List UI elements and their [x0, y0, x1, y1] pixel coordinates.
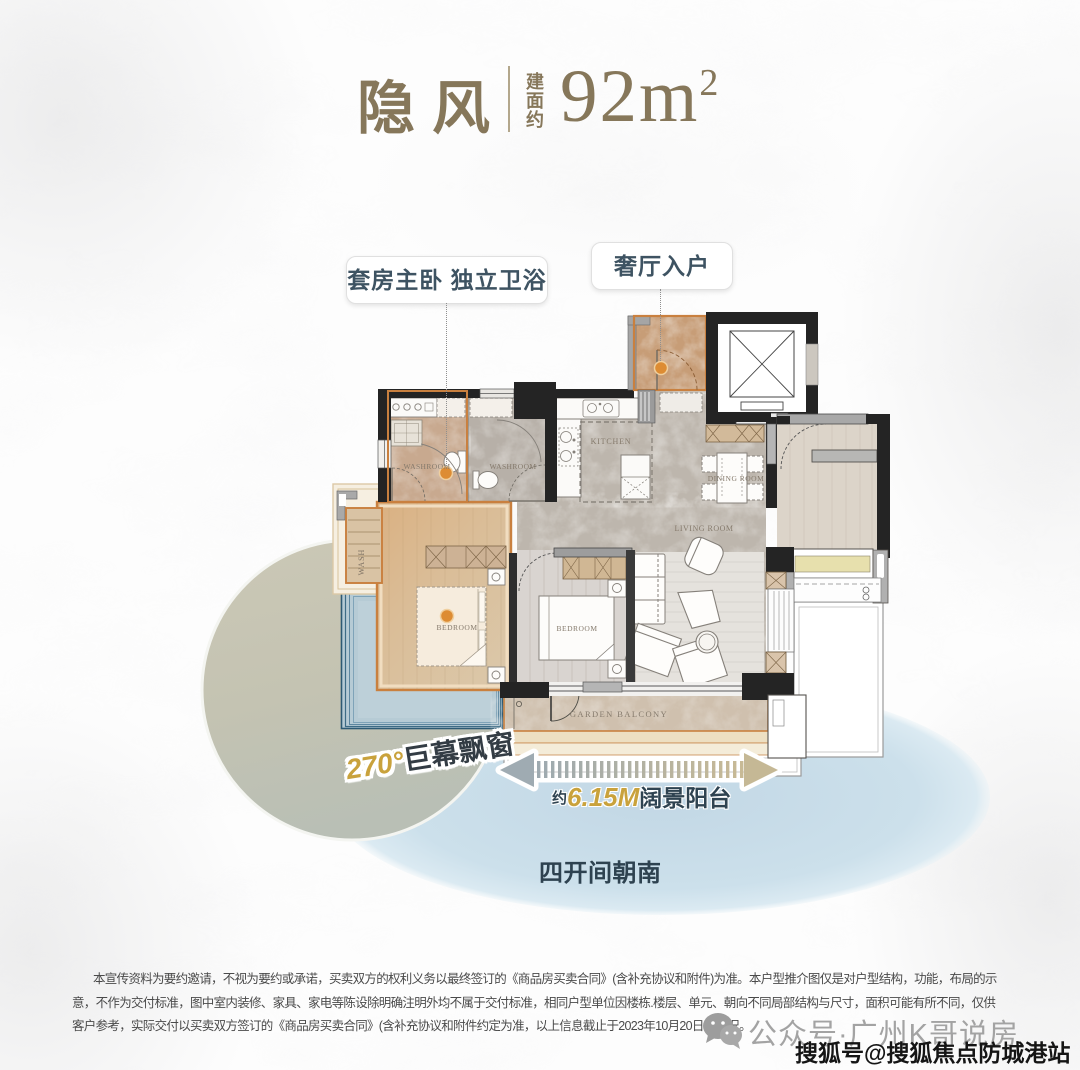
svg-text:WASHROOM: WASHROOM [404, 462, 451, 471]
svg-text:GARDEN BALCONY: GARDEN BALCONY [570, 709, 668, 719]
svg-text:BEDROOM: BEDROOM [556, 624, 597, 633]
svg-text:BEDROOM: BEDROOM [436, 623, 477, 632]
svg-text:LIVING ROOM: LIVING ROOM [674, 524, 733, 533]
svg-text:KITCHEN: KITCHEN [591, 437, 632, 446]
svg-text:DINING ROOM: DINING ROOM [708, 474, 765, 483]
svg-text:WASH: WASH [357, 549, 366, 576]
svg-text:WASHROOM: WASHROOM [490, 462, 537, 471]
